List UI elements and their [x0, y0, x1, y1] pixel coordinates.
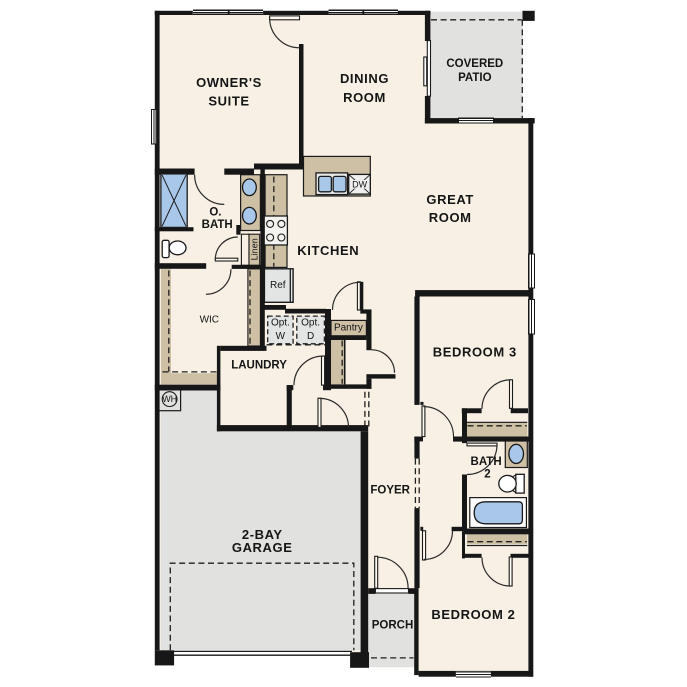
svg-text:BATH: BATH	[202, 219, 233, 231]
svg-text:2: 2	[484, 469, 490, 481]
svg-text:BEDROOM 3: BEDROOM 3	[433, 345, 517, 360]
svg-text:ROOM: ROOM	[343, 90, 386, 105]
svg-text:FOYER: FOYER	[370, 485, 410, 497]
svg-text:PATIO: PATIO	[458, 72, 491, 84]
svg-text:OWNER'S: OWNER'S	[196, 75, 262, 90]
svg-text:DW: DW	[352, 179, 367, 189]
svg-text:ROOM: ROOM	[429, 210, 472, 225]
svg-text:WH: WH	[162, 394, 177, 404]
svg-text:WIC: WIC	[200, 314, 219, 325]
svg-text:KITCHEN: KITCHEN	[297, 243, 359, 258]
svg-text:Ref: Ref	[270, 280, 286, 291]
svg-text:BEDROOM 2: BEDROOM 2	[431, 607, 515, 622]
svg-text:PORCH: PORCH	[372, 619, 414, 631]
svg-text:GREAT: GREAT	[426, 192, 474, 207]
svg-text:Pantry: Pantry	[334, 323, 363, 334]
svg-text:W: W	[276, 331, 286, 342]
svg-text:GARAGE: GARAGE	[232, 540, 293, 555]
svg-text:DINING: DINING	[340, 71, 389, 86]
svg-text:COVERED: COVERED	[446, 58, 503, 70]
svg-text:O.: O.	[209, 206, 221, 218]
svg-text:Opt.: Opt.	[301, 317, 320, 328]
svg-text:SUITE: SUITE	[208, 94, 249, 109]
svg-text:Linen: Linen	[249, 238, 259, 260]
svg-text:BATH: BATH	[471, 456, 502, 468]
svg-text:D: D	[307, 331, 314, 342]
svg-text:Opt.: Opt.	[271, 317, 290, 328]
svg-text:LAUNDRY: LAUNDRY	[231, 360, 287, 372]
